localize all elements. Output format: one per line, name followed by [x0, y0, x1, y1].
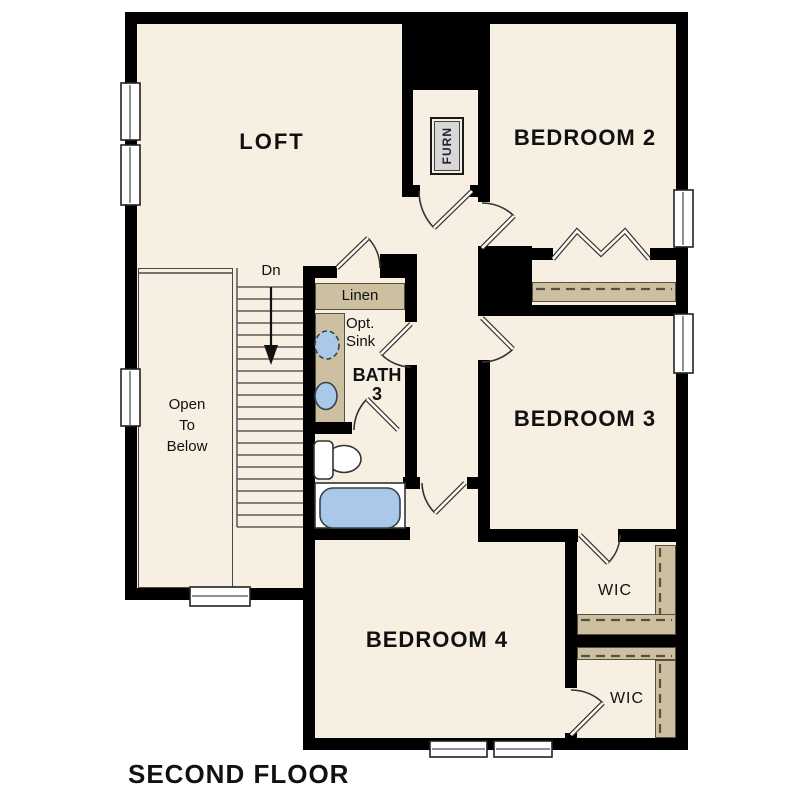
- door-furnace-closet: [419, 191, 472, 228]
- stairs-dn-label: Dn: [256, 263, 286, 280]
- opt-sink-line2: Sink: [346, 333, 388, 351]
- furnace-label: FURN: [440, 127, 454, 164]
- room-label-wic-lower: WIC: [602, 690, 652, 708]
- open-to-below-line3: Below: [148, 436, 226, 457]
- optional-sink-fixture: [315, 331, 339, 359]
- door-loft-hall: [337, 238, 380, 268]
- room-label-bedroom4: BEDROOM 4: [357, 628, 517, 652]
- bath-label-line2: 3: [348, 385, 406, 404]
- room-label-bedroom3: BEDROOM 3: [505, 407, 665, 431]
- floor-plan: FURN LOFT BEDROOM 2 BEDROOM 3 BEDROOM 4 …: [0, 0, 810, 810]
- plan-linework: [0, 0, 810, 810]
- room-label-bath: BATH 3: [348, 366, 406, 404]
- sink-fixture: [315, 383, 337, 410]
- floor-plan-title: SECOND FLOOR: [128, 760, 448, 789]
- door-wic-lower: [571, 690, 603, 735]
- door-wic-upper: [580, 535, 620, 563]
- bifold-closet-doors: [553, 231, 649, 259]
- room-label-bedroom2: BEDROOM 2: [505, 126, 665, 150]
- bathtub-fixture: [315, 483, 405, 528]
- open-to-below-label: Open To Below: [148, 394, 226, 457]
- closet-rod-lines: [536, 289, 672, 734]
- bath-label-line1: BATH: [348, 366, 406, 385]
- opt-sink-line1: Opt.: [346, 315, 388, 333]
- door-bedroom3: [482, 318, 513, 362]
- door-bedroom2: [482, 203, 514, 248]
- toilet-fixture: [314, 441, 361, 479]
- open-to-below-line1: Open: [148, 394, 226, 415]
- opt-sink-label: Opt. Sink: [346, 315, 388, 351]
- open-to-below-line2: To: [148, 415, 226, 436]
- room-label-loft: LOFT: [222, 130, 322, 154]
- room-label-wic-upper: WIC: [590, 582, 640, 600]
- door-bedroom4: [422, 483, 465, 513]
- linen-label: Linen: [315, 288, 405, 305]
- furnace-unit: FURN: [430, 117, 464, 175]
